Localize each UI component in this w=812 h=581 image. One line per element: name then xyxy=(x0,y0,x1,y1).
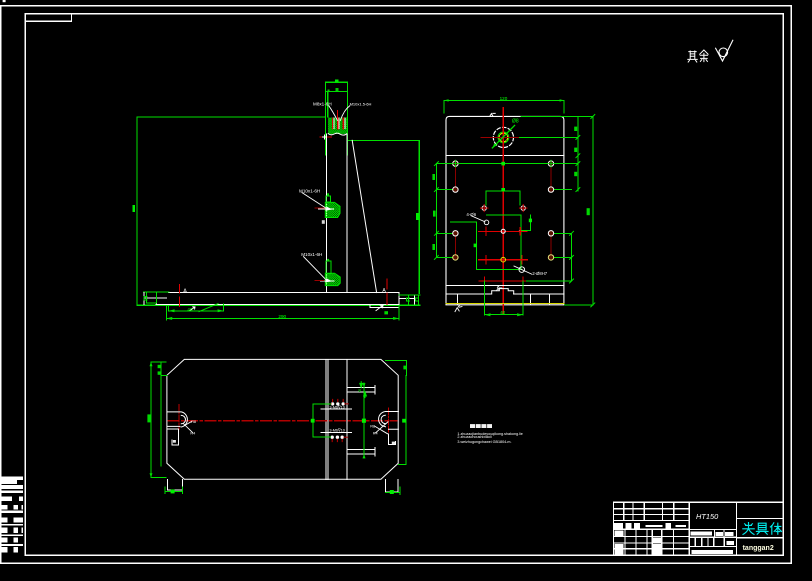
svg-text:290: 290 xyxy=(278,314,286,319)
svg-text:3.weizhugongchawei GB1804-m.: 3.weizhugongchawei GB1804-m. xyxy=(457,440,511,444)
svg-text:HT150: HT150 xyxy=(696,512,719,521)
svg-text:R8: R8 xyxy=(370,425,375,429)
svg-text:M10x1-6H: M10x1-6H xyxy=(299,188,320,193)
svg-text:R4: R4 xyxy=(373,431,378,435)
svg-text:Ø8: Ø8 xyxy=(512,118,519,124)
svg-text:M10x1-6H: M10x1-6H xyxy=(301,252,322,257)
svg-text:M10x1.5-6H: M10x1.5-6H xyxy=(350,101,372,106)
svg-text:R4: R4 xyxy=(190,431,195,435)
svg-text:40: 40 xyxy=(187,307,193,312)
svg-text:3-M6∇10: 3-M6∇10 xyxy=(329,406,344,410)
svg-text:40: 40 xyxy=(500,310,505,315)
svg-text:M8x1-6H: M8x1-6H xyxy=(313,101,332,106)
svg-text:2-Ø8H7: 2-Ø8H7 xyxy=(532,271,547,276)
svg-text:120: 120 xyxy=(500,96,508,101)
svg-text:4-Ø6: 4-Ø6 xyxy=(466,212,476,217)
svg-text:tanggan2: tanggan2 xyxy=(743,545,774,552)
svg-text:A: A xyxy=(183,289,187,295)
svg-text:3-M6∇10: 3-M6∇10 xyxy=(329,429,344,433)
svg-text:2.zhuzaohoushixiaoli: 2.zhuzaohoushixiaoli xyxy=(457,435,491,439)
svg-text:R8: R8 xyxy=(191,420,196,424)
